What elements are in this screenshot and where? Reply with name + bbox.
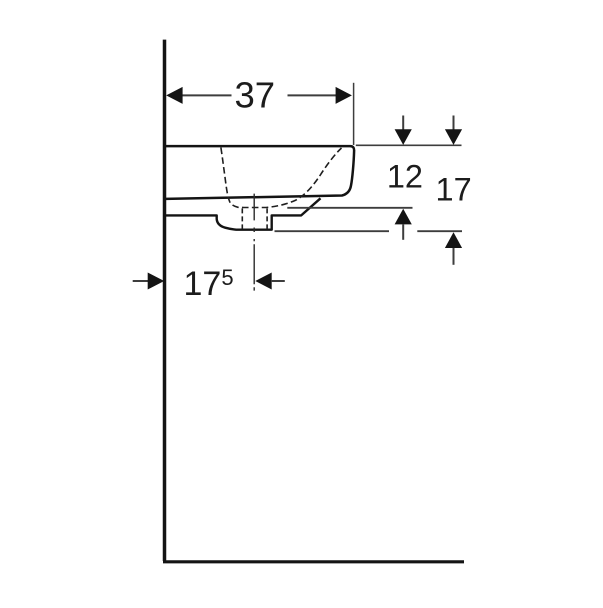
- svg-text:17: 17: [436, 172, 472, 208]
- svg-text:12: 12: [387, 158, 423, 194]
- svg-text:37: 37: [234, 75, 275, 116]
- svg-text:175: 175: [184, 265, 234, 303]
